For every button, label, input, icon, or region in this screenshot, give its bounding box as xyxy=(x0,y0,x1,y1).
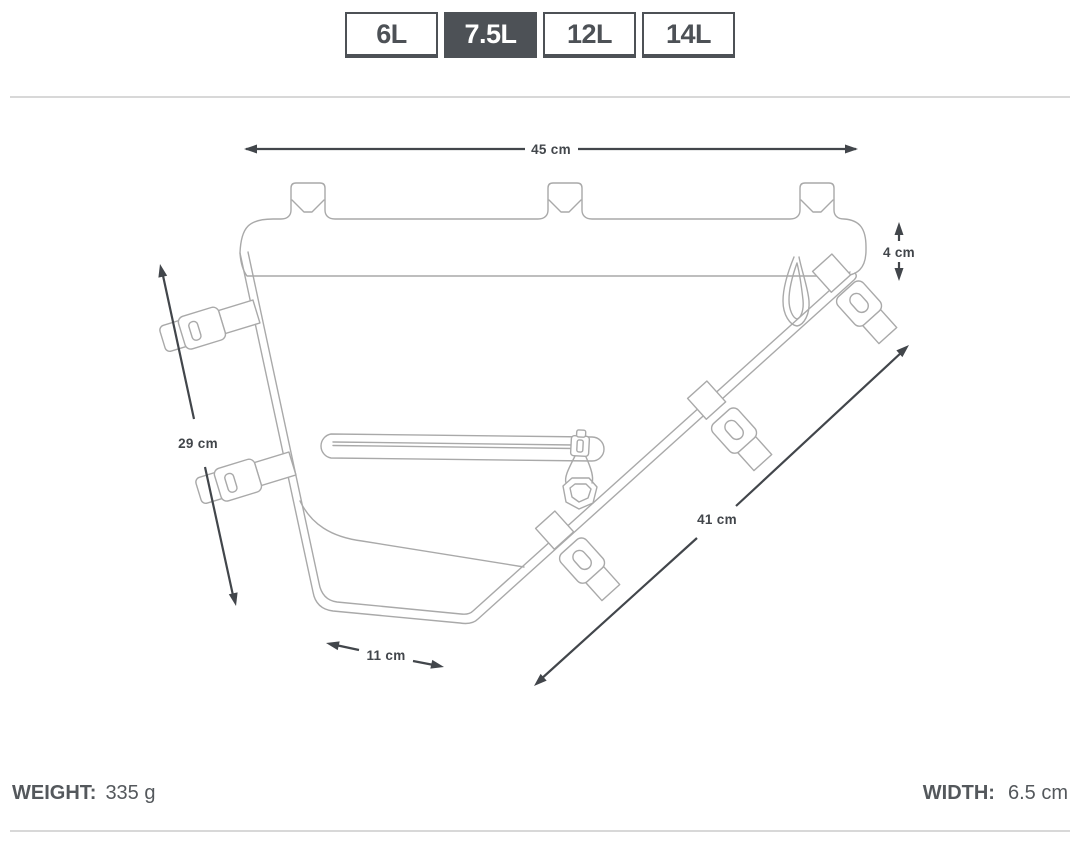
strap-buckle-diagonal-lower xyxy=(533,508,624,604)
dimension-label-bottom-diagonal: 41 cm xyxy=(697,512,737,527)
bottom-divider xyxy=(10,830,1070,832)
dimension-top-width: 45 cm xyxy=(244,142,858,157)
bag-binding-inner-line xyxy=(248,252,850,614)
weight-spec: WEIGHT:335 g xyxy=(12,782,156,805)
spec-bar: WEIGHT:335 g WIDTH:6.5 cm xyxy=(12,782,1068,805)
dimension-label-base-width: 11 cm xyxy=(366,648,405,663)
width-value: 6.5 cm xyxy=(1008,782,1068,804)
width-label: WIDTH: xyxy=(923,782,995,804)
dimension-label-top-width: 45 cm xyxy=(531,142,571,157)
dimension-label-rear-height: 4 cm xyxy=(883,245,915,260)
strap-buckle-left-lower xyxy=(194,447,298,508)
dimension-base-width: 11 cm xyxy=(325,639,445,672)
top-sleeve xyxy=(240,183,866,276)
dimension-bottom-diagonal: 41 cm xyxy=(531,342,912,690)
width-spec: WIDTH:6.5 cm xyxy=(923,782,1068,805)
dimension-label-front-height: 29 cm xyxy=(178,436,218,451)
zipper xyxy=(321,430,604,509)
zipper-slider xyxy=(570,436,589,457)
dimension-rear-height: 4 cm xyxy=(883,222,915,281)
frame-pack-diagram: 45 cm 4 cm 29 cm 41 cm 11 cm xyxy=(0,0,1080,841)
weight-label: WEIGHT: xyxy=(12,782,96,804)
weight-value: 335 g xyxy=(105,782,155,804)
panel-seam xyxy=(300,501,524,567)
